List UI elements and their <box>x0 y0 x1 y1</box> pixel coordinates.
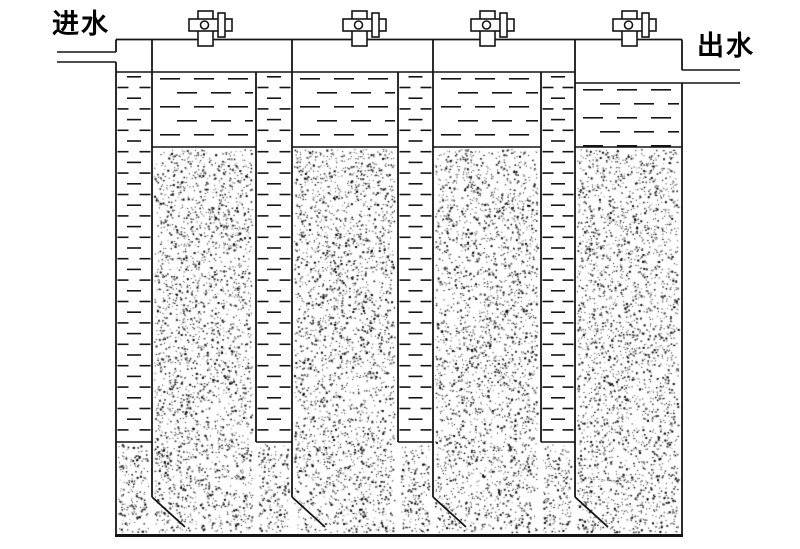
outlet-pipe <box>682 70 740 83</box>
inlet-label: 进水 <box>52 11 110 38</box>
valve-wheel-icon <box>625 21 633 29</box>
inlet-pipe <box>57 52 116 62</box>
valve-4 <box>613 11 656 46</box>
valve-3 <box>471 11 514 46</box>
reactor-schematic <box>0 0 800 549</box>
reactor-diagram: 进水 出水 <box>0 0 800 549</box>
outlet-label: 出水 <box>697 33 755 60</box>
water-surface-line <box>116 72 682 83</box>
valve-wheel-icon <box>201 21 209 29</box>
valve-1 <box>189 11 232 46</box>
tank-shell <box>115 40 683 538</box>
valve-wheel-icon <box>483 21 491 29</box>
valve-2 <box>343 11 386 46</box>
valve-wheel-icon <box>355 21 363 29</box>
down-baffles <box>116 40 608 528</box>
